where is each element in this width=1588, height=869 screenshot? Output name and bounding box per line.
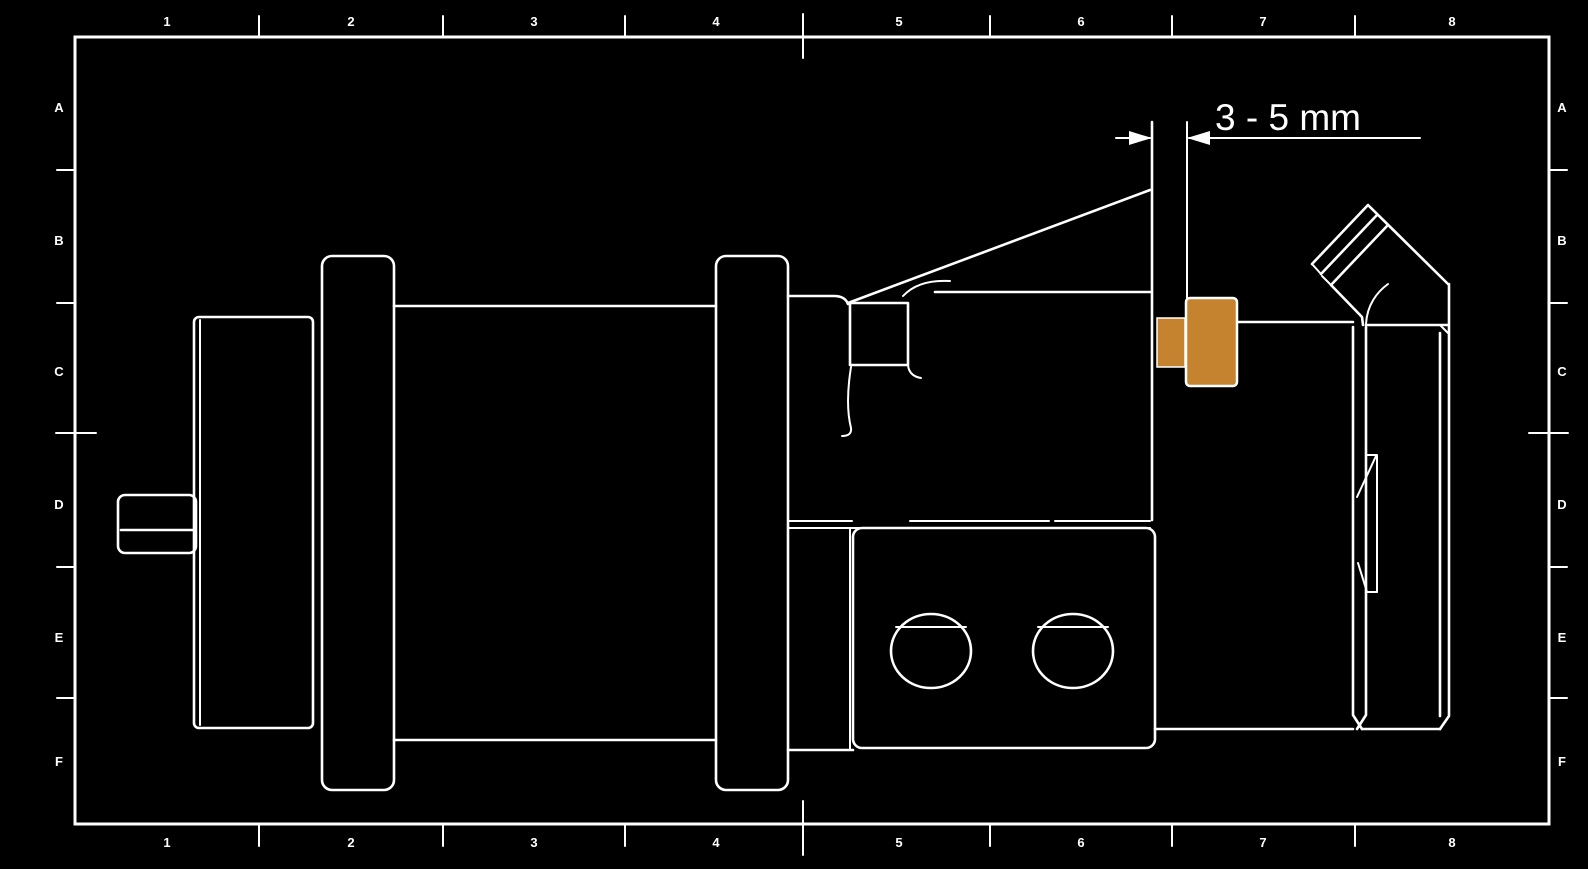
grid-row-label: C <box>1557 364 1567 379</box>
electrode-holder <box>1186 298 1237 386</box>
grid-col-label: 2 <box>347 835 354 850</box>
drawing-page: 1 2 3 4 5 6 7 8 1 2 3 4 5 6 7 8 A B C D … <box>0 0 1588 869</box>
grid-col-label: 2 <box>347 14 354 29</box>
grid-col-label: 5 <box>895 835 902 850</box>
grid-col-label: 4 <box>712 835 720 850</box>
grid-row-label: A <box>54 100 64 115</box>
grid-col-label: 3 <box>530 835 537 850</box>
grid-col-label: 6 <box>1077 835 1084 850</box>
grid-row-label: A <box>1557 100 1567 115</box>
grid-row-label: E <box>1558 630 1567 645</box>
grid-col-label: 8 <box>1448 835 1455 850</box>
grid-row-label: B <box>1557 233 1566 248</box>
dimension-label: 3 - 5 mm <box>1215 97 1361 138</box>
grid-row-label: C <box>54 364 64 379</box>
grid-row-label: D <box>54 497 63 512</box>
grid-col-label: 1 <box>163 14 170 29</box>
grid-col-label: 7 <box>1259 835 1266 850</box>
grid-row-label: D <box>1557 497 1566 512</box>
grid-col-label: 5 <box>895 14 902 29</box>
electrode-tip <box>1157 318 1185 367</box>
grid-row-label: B <box>54 233 63 248</box>
grid-row-label: E <box>55 630 64 645</box>
grid-col-label: 3 <box>530 14 537 29</box>
grid-row-label: F <box>1558 754 1566 769</box>
grid-col-label: 7 <box>1259 14 1266 29</box>
grid-col-label: 6 <box>1077 14 1084 29</box>
grid-col-label: 8 <box>1448 14 1455 29</box>
technical-drawing: 1 2 3 4 5 6 7 8 1 2 3 4 5 6 7 8 A B C D … <box>0 0 1588 869</box>
grid-col-label: 1 <box>163 835 170 850</box>
grid-row-label: F <box>55 754 63 769</box>
grid-col-label: 4 <box>712 14 720 29</box>
